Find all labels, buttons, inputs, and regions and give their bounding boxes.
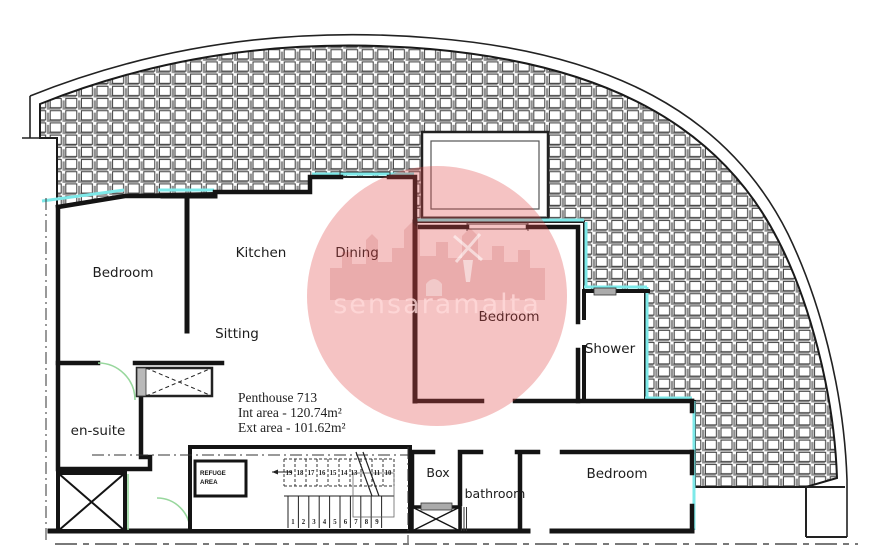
unit-title: Penthouse 713 <box>238 390 317 405</box>
watermark: sensaramalta <box>307 166 567 426</box>
stair-num: 10 <box>385 470 392 477</box>
label-bedroom-right: Bedroom <box>586 466 647 482</box>
stairs-numbers-lower: 1 2 3 4 5 6 7 8 9 <box>291 519 379 526</box>
door-hall <box>157 498 190 531</box>
unit-int-area: Int area - 120.74m² <box>238 405 342 420</box>
stair-num: 9 <box>375 519 379 526</box>
label-shower: Shower <box>585 341 636 357</box>
door-ensuite <box>98 363 135 400</box>
shaft-box <box>412 507 467 531</box>
staircase: REFUGE AREA 19 18 17 16 15 14 13 11 10 <box>190 447 410 531</box>
refuge-label-2: AREA <box>200 479 218 486</box>
sill-box <box>421 503 452 510</box>
unit-ext-area: Ext area - 101.62m² <box>238 420 346 435</box>
refuge-label-1: REFUGE <box>200 470 226 477</box>
stair-num: 4 <box>323 519 327 526</box>
stair-num: 19 <box>286 470 293 477</box>
unit-info: Penthouse 713 Int area - 120.74m² Ext ar… <box>238 390 346 435</box>
stair-num: 17 <box>308 470 315 477</box>
stair-num: 5 <box>333 519 337 526</box>
label-kitchen: Kitchen <box>236 245 287 261</box>
wardrobe <box>137 368 212 396</box>
stair-num: 2 <box>302 519 306 526</box>
stair-num: 18 <box>297 470 304 477</box>
stair-num: 3 <box>312 519 316 526</box>
shaft-left <box>58 473 125 531</box>
stair-num: 1 <box>291 519 295 526</box>
stair-num: 15 <box>330 470 337 477</box>
label-ensuite: en-suite <box>71 423 126 439</box>
stair-num: 7 <box>354 519 358 526</box>
label-sitting: Sitting <box>215 326 259 342</box>
stair-num: 11 <box>374 470 381 477</box>
label-bedroom-left: Bedroom <box>92 265 153 281</box>
stair-num: 16 <box>319 470 326 477</box>
sill-shower <box>594 288 616 295</box>
stair-num: 14 <box>341 470 348 477</box>
floor-plan-page: REFUGE AREA 19 18 17 16 15 14 13 11 10 <box>0 0 877 550</box>
label-box: Box <box>426 465 449 480</box>
watermark-text: sensaramalta <box>333 289 541 320</box>
stair-num: 13 <box>351 470 358 477</box>
stair-num: 8 <box>365 519 369 526</box>
parapet-bottom-right-step <box>806 487 847 537</box>
floor-plan-canvas: REFUGE AREA 19 18 17 16 15 14 13 11 10 <box>0 0 877 550</box>
label-bathroom: bathroom <box>465 486 526 501</box>
stair-num: 6 <box>344 519 348 526</box>
